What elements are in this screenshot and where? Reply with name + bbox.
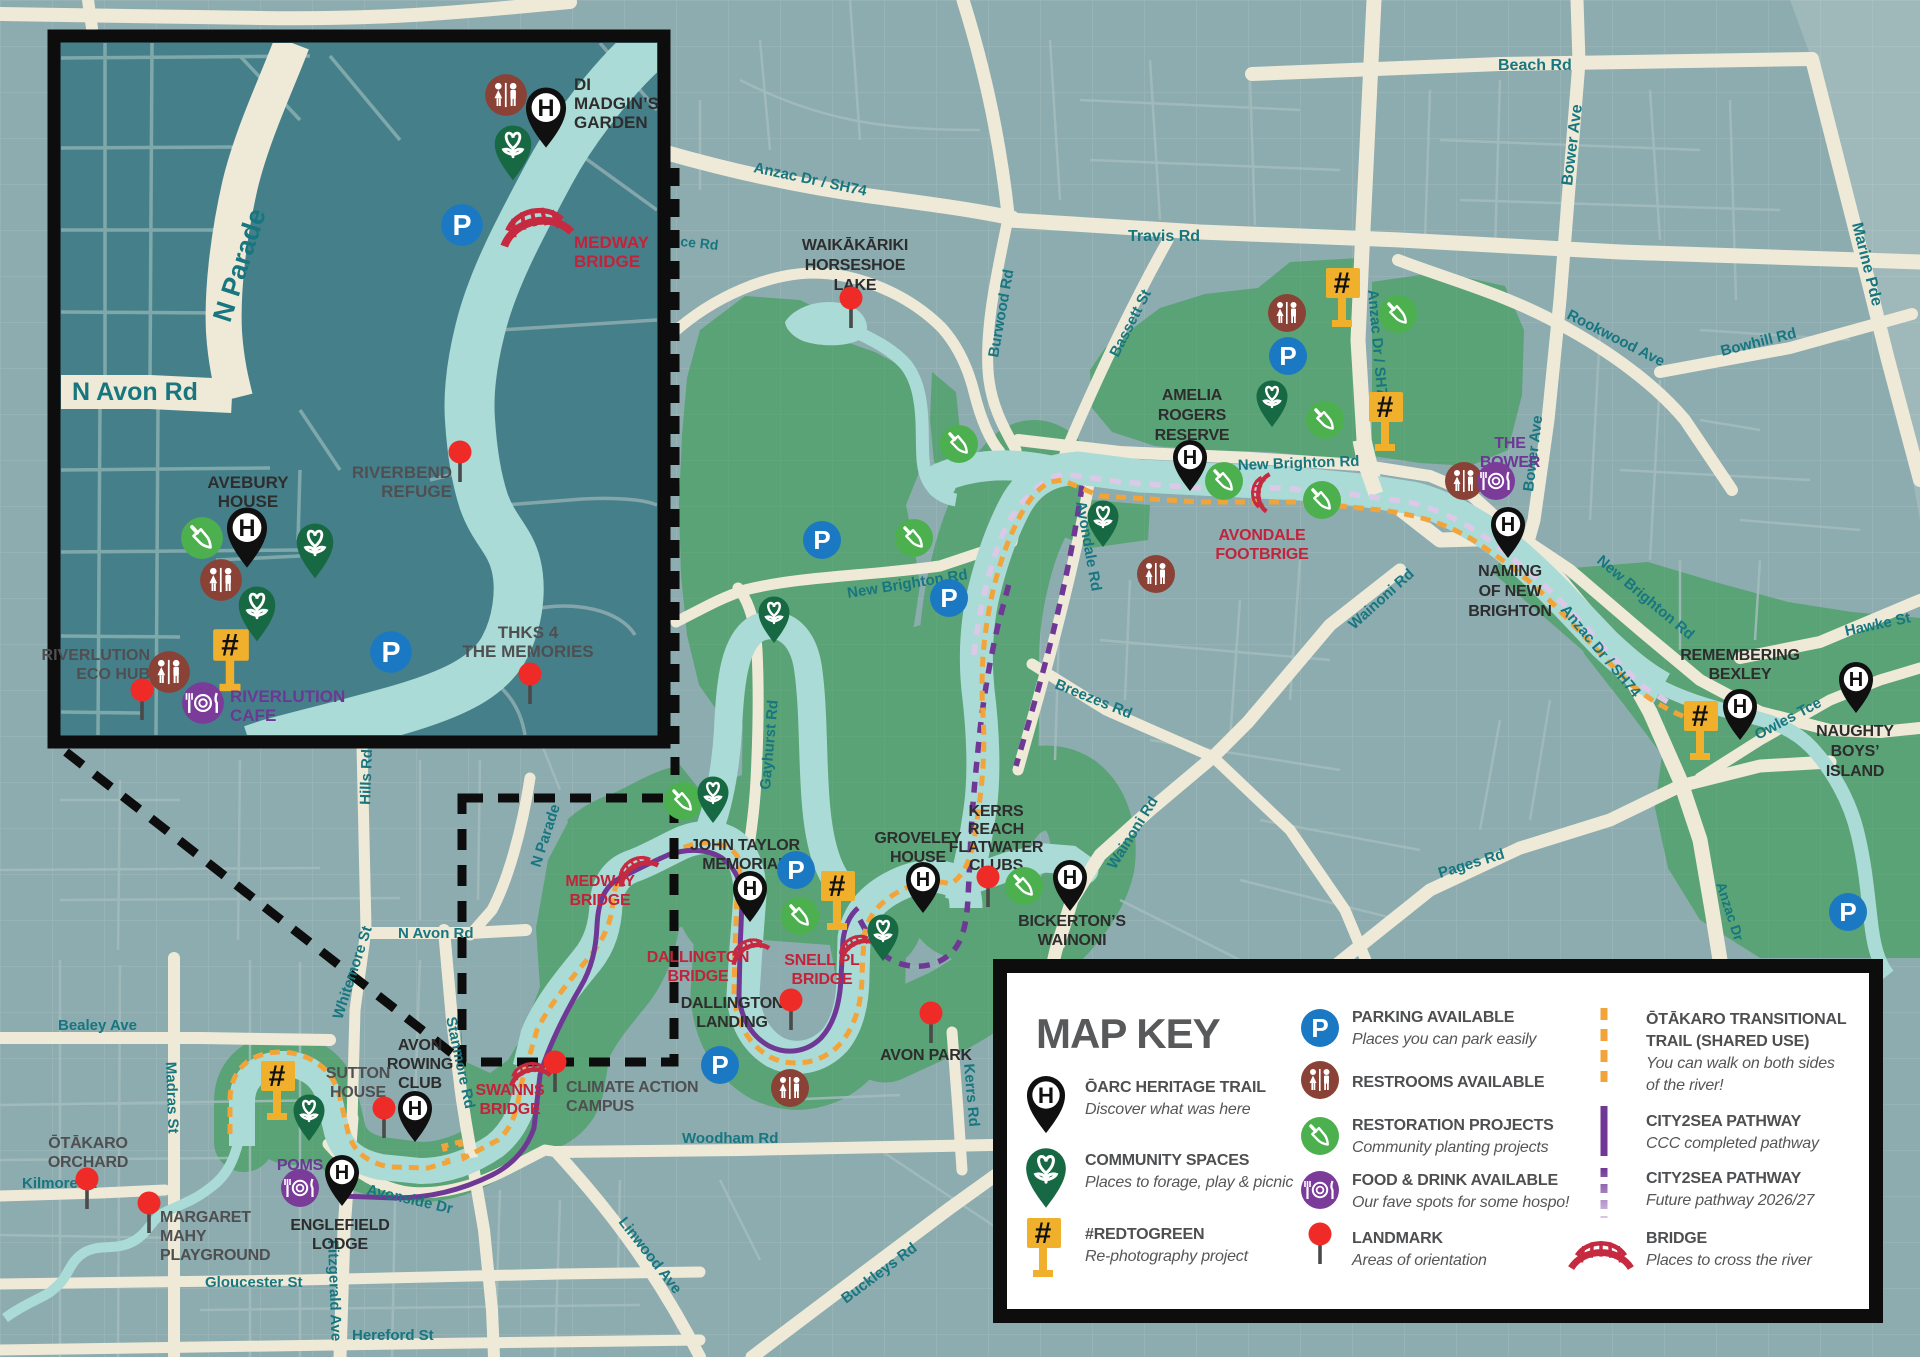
svg-text:You can walk on both sides: You can walk on both sides (1646, 1055, 1835, 1072)
svg-text:PARKING AVAILABLE: PARKING AVAILABLE (1352, 1009, 1515, 1026)
svg-text:of the river!: of the river! (1646, 1077, 1724, 1094)
svg-text:Hereford St: Hereford St (352, 1327, 434, 1344)
svg-text:Places to forage, play & picni: Places to forage, play & picnic (1085, 1174, 1293, 1191)
svg-text:ŌTĀKARO TRANSITIONAL: ŌTĀKARO TRANSITIONAL (1646, 1009, 1847, 1028)
svg-text:Re-photography project: Re-photography project (1085, 1248, 1249, 1265)
svg-text:Community planting projects: Community planting projects (1352, 1139, 1549, 1156)
svg-text:Areas of orientation: Areas of orientation (1351, 1252, 1487, 1269)
svg-text:Bealey Ave: Bealey Ave (58, 1017, 137, 1034)
svg-text:CITY2SEA PATHWAY: CITY2SEA PATHWAY (1646, 1113, 1802, 1130)
svg-text:NAMINGOF NEWBRIGHTON: NAMINGOF NEWBRIGHTON (1468, 563, 1551, 620)
svg-text:CCC completed pathway: CCC completed pathway (1646, 1135, 1820, 1152)
svg-text:#REDTOGREEN: #REDTOGREEN (1085, 1226, 1204, 1243)
svg-text:COMMUNITY SPACES: COMMUNITY SPACES (1085, 1152, 1250, 1169)
svg-text:MAP KEY: MAP KEY (1036, 1010, 1221, 1057)
svg-text:Woodham Rd: Woodham Rd (682, 1130, 778, 1147)
svg-text:BRIDGE: BRIDGE (1646, 1230, 1708, 1247)
svg-text:AVON PARK: AVON PARK (880, 1047, 972, 1064)
svg-text:N Avon Rd: N Avon Rd (72, 378, 198, 406)
svg-text:CITY2SEA PATHWAY: CITY2SEA PATHWAY (1646, 1170, 1802, 1187)
svg-text:AVEBURYHOUSE: AVEBURYHOUSE (207, 473, 289, 511)
svg-text:Our fave spots for some hospo!: Our fave spots for some hospo! (1352, 1194, 1570, 1211)
svg-text:FOOD & DRINK AVAILABLE: FOOD & DRINK AVAILABLE (1352, 1172, 1558, 1189)
svg-text:AMELIAROGERSRESERVE: AMELIAROGERSRESERVE (1155, 387, 1230, 444)
svg-text:TRAIL (SHARED USE): TRAIL (SHARED USE) (1646, 1033, 1809, 1050)
svg-text:LANDMARK: LANDMARK (1352, 1230, 1443, 1247)
svg-text:Beach Rd: Beach Rd (1498, 57, 1572, 74)
svg-text:Hills Rd: Hills Rd (357, 749, 376, 805)
svg-text:MEDWAYBRIDGE: MEDWAYBRIDGE (574, 233, 650, 271)
svg-text:N Avon Rd: N Avon Rd (398, 925, 474, 942)
svg-text:Madras St: Madras St (162, 1062, 181, 1134)
svg-text:Future pathway 2026/27: Future pathway 2026/27 (1646, 1192, 1815, 1209)
svg-text:Travis Rd: Travis Rd (1128, 228, 1200, 245)
svg-text:Gloucester St: Gloucester St (205, 1274, 303, 1291)
svg-text:ŌARC HERITAGE TRAIL: ŌARC HERITAGE TRAIL (1085, 1077, 1266, 1096)
svg-text:RESTORATION PROJECTS: RESTORATION PROJECTS (1352, 1117, 1554, 1134)
svg-text:RESTROOMS AVAILABLE: RESTROOMS AVAILABLE (1352, 1074, 1545, 1091)
svg-text:Discover what was here: Discover what was here (1085, 1101, 1251, 1118)
svg-text:Places to cross the river: Places to cross the river (1646, 1252, 1813, 1269)
svg-text:Fitzgerald Ave: Fitzgerald Ave (324, 1240, 345, 1342)
svg-text:Places you can park easily: Places you can park easily (1352, 1031, 1537, 1048)
